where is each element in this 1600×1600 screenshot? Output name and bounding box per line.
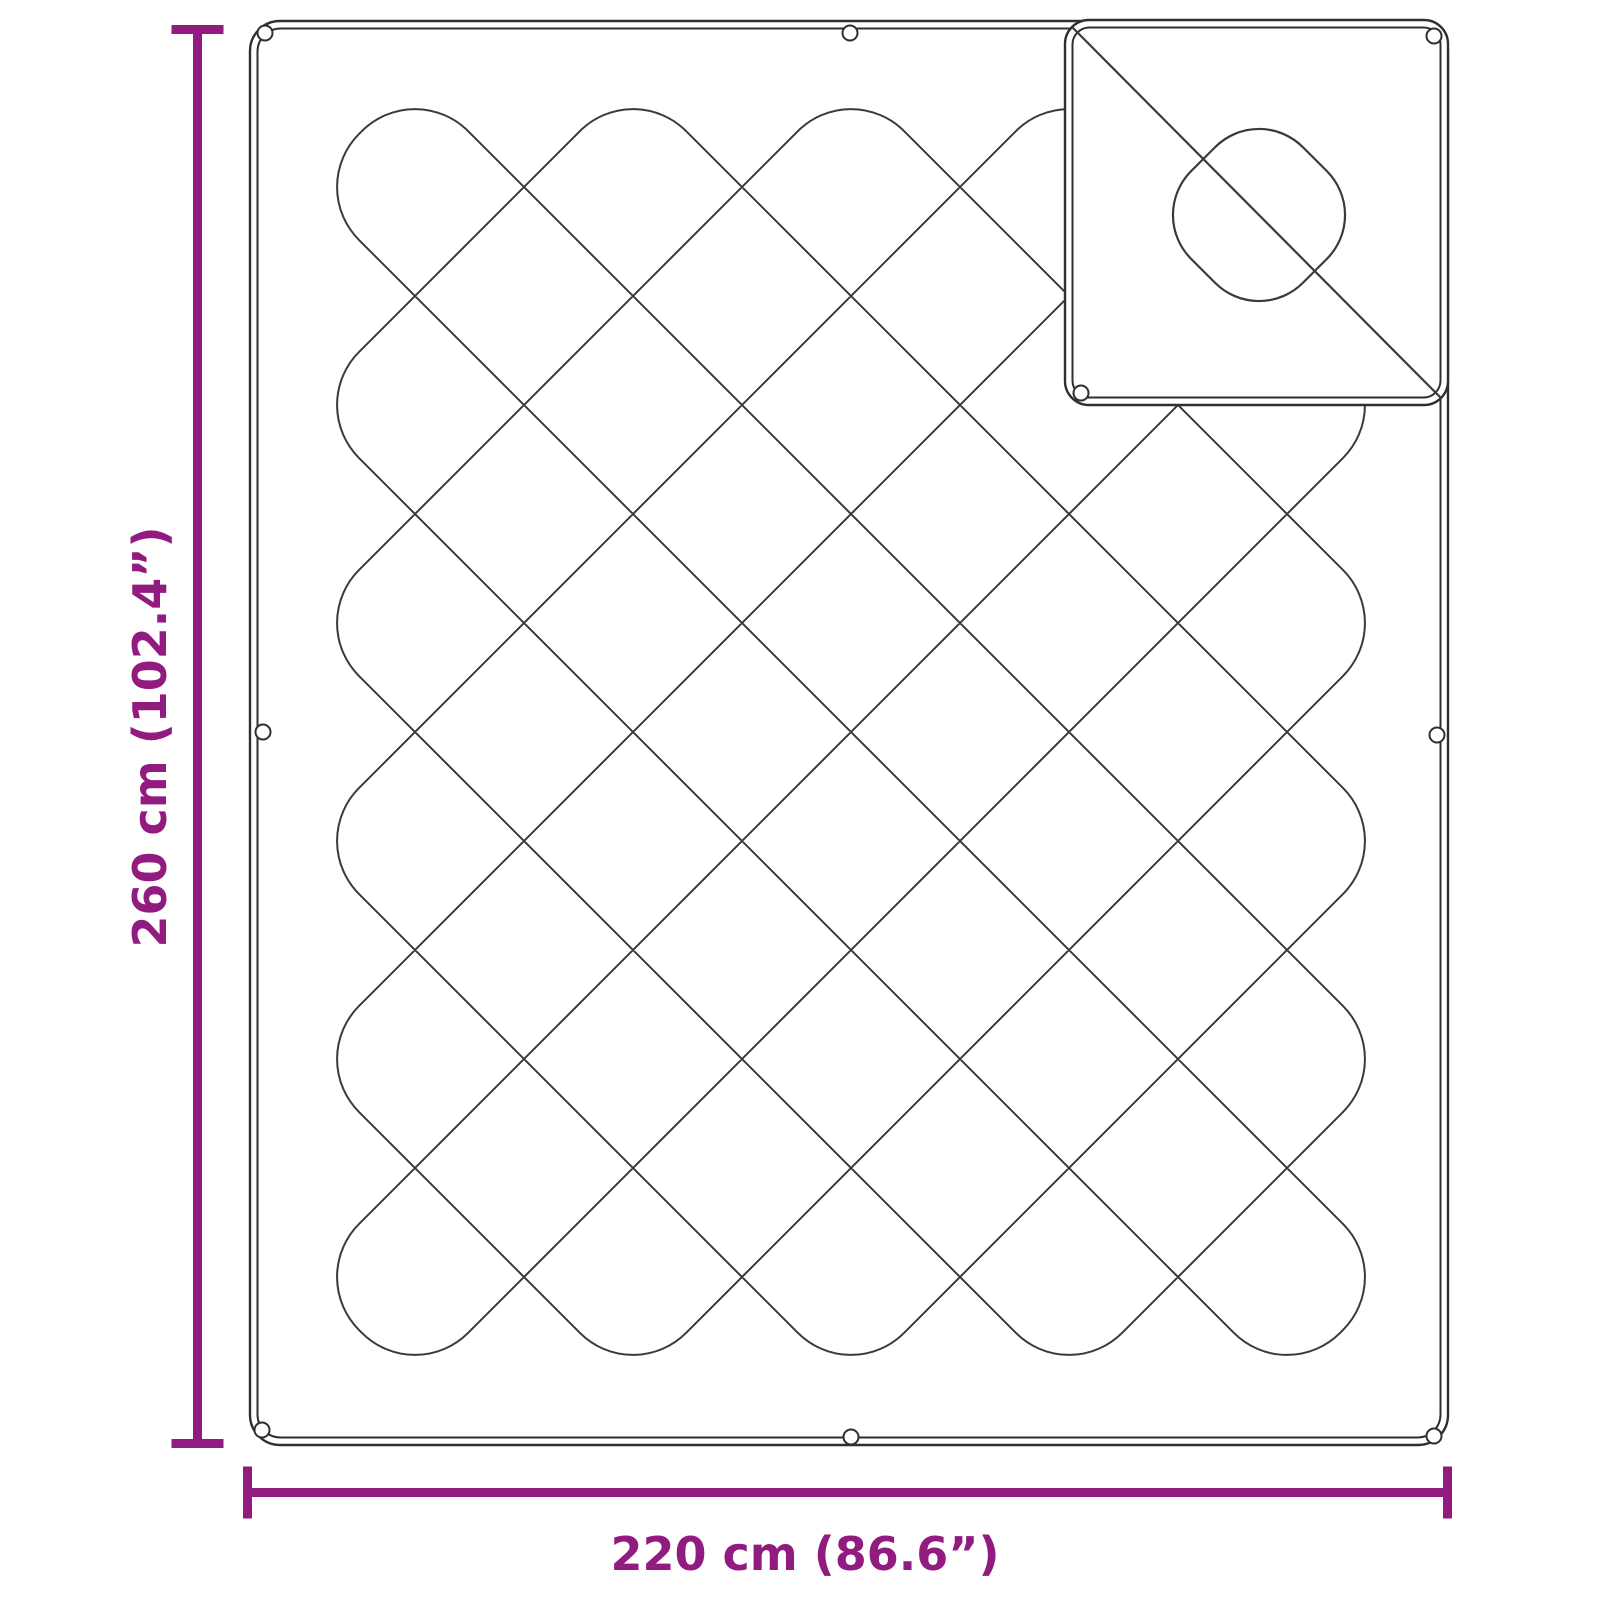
height-dimension-cap-top (172, 25, 224, 34)
eyelet-icon (844, 1430, 859, 1445)
width-dimension-cap-right (1443, 1467, 1452, 1519)
eyelet-icon (843, 26, 858, 41)
width-dimension-line (248, 1488, 1448, 1497)
height-dimension-cap-bottom (172, 1439, 224, 1448)
width-dimension-cap-left (243, 1467, 252, 1519)
eyelet-icon (1074, 386, 1089, 401)
eyelet-icon (1427, 1429, 1442, 1444)
blanket-dimension-diagram: 260 cm (102.4”) 220 cm (86.6”) (0, 0, 1600, 1600)
eyelet-icon (255, 1423, 270, 1438)
eyelet-icon (256, 725, 271, 740)
width-dimension-label: 220 cm (86.6”) (610, 1527, 999, 1581)
folded-corner-flap (1065, 20, 1448, 405)
eyelet-icon (1430, 728, 1445, 743)
height-dimension-label: 260 cm (102.4”) (123, 526, 177, 947)
eyelet-icon (258, 26, 273, 41)
eyelet-icon (1427, 29, 1442, 44)
height-dimension-line (193, 25, 202, 1448)
